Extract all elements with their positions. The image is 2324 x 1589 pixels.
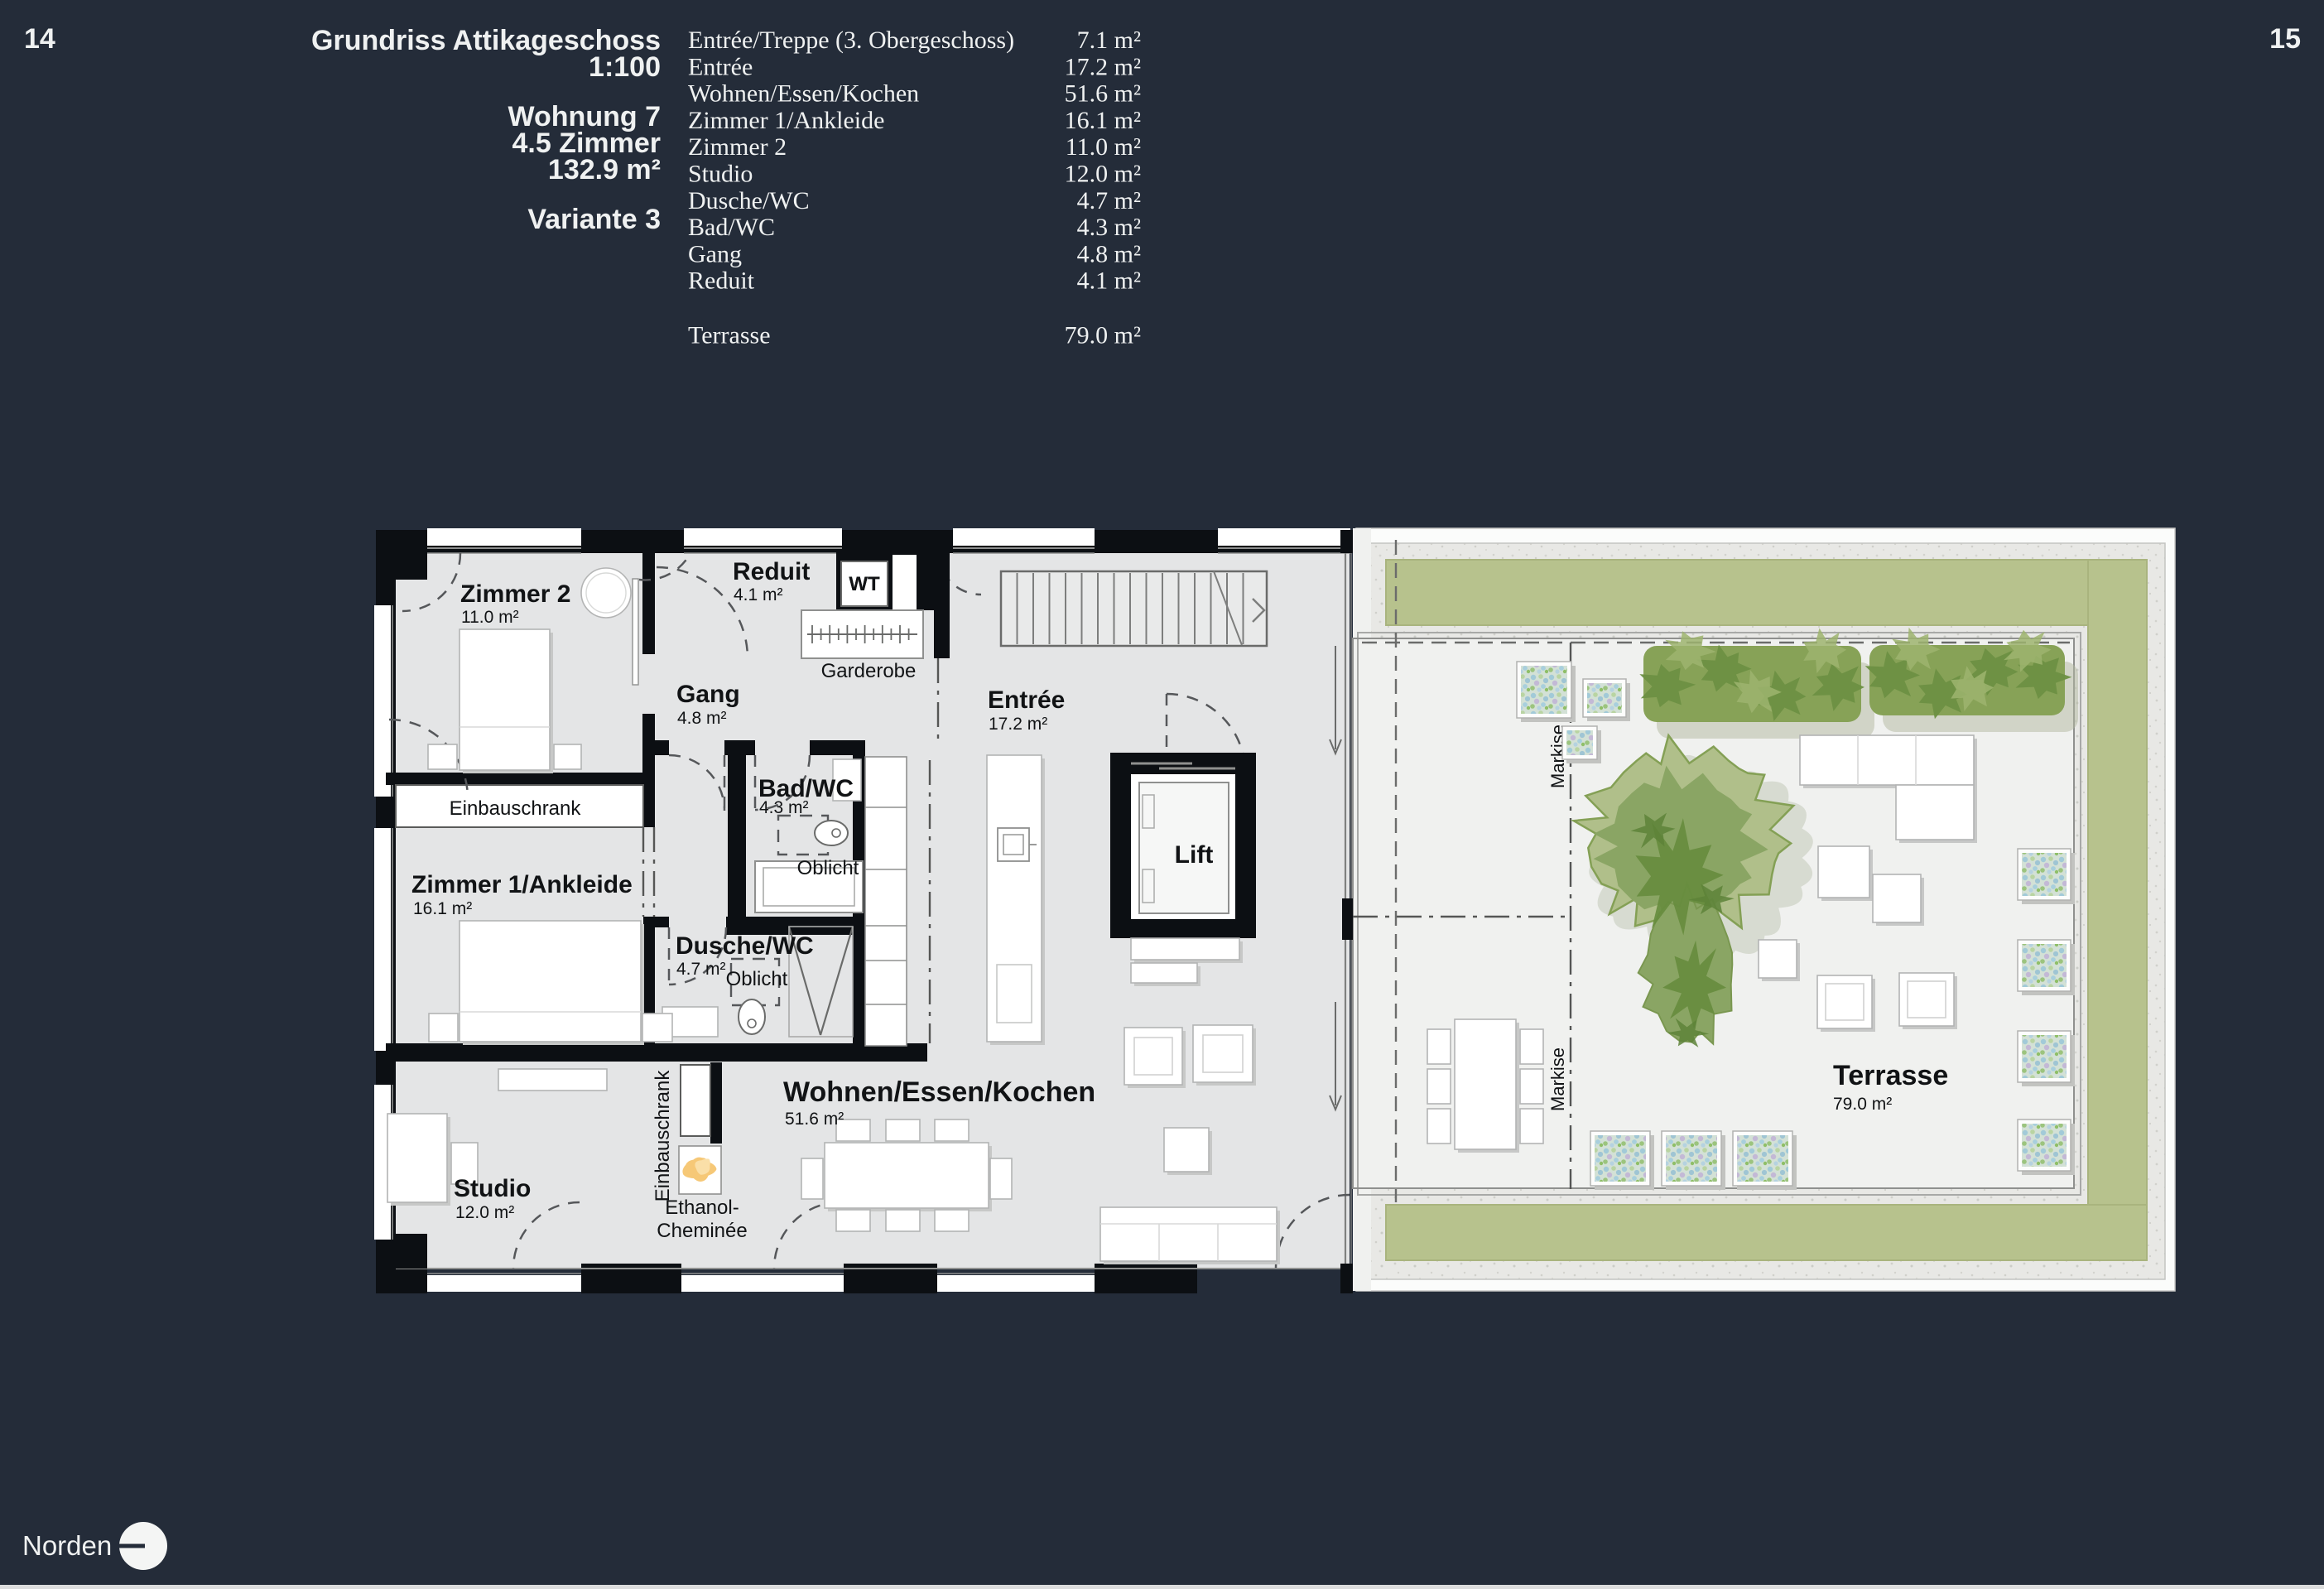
svg-text:17.2 m²: 17.2 m²	[989, 715, 1047, 734]
svg-text:Oblicht: Oblicht	[726, 968, 788, 990]
svg-text:Einbauschrank: Einbauschrank	[652, 1070, 674, 1202]
svg-text:Entrée: Entrée	[688, 53, 753, 80]
svg-text:14: 14	[24, 23, 55, 55]
svg-text:79.0 m²: 79.0 m²	[1833, 1095, 1892, 1114]
svg-text:Einbauschrank: Einbauschrank	[450, 797, 582, 820]
svg-text:4.7 m²: 4.7 m²	[1077, 187, 1141, 214]
svg-text:Reduit: Reduit	[688, 267, 755, 295]
svg-text:4.3 m²: 4.3 m²	[759, 798, 809, 817]
svg-text:Zimmer 2: Zimmer 2	[688, 133, 787, 161]
svg-text:Ethanol-: Ethanol-	[665, 1197, 739, 1219]
svg-text:4.8 m²: 4.8 m²	[1077, 240, 1141, 267]
svg-text:79.0 m²: 79.0 m²	[1065, 322, 1141, 349]
svg-text:4.7 m²: 4.7 m²	[676, 960, 726, 979]
svg-text:Oblicht: Oblicht	[797, 857, 859, 879]
svg-text:Terrasse: Terrasse	[688, 322, 771, 349]
svg-text:Cheminée: Cheminée	[657, 1220, 747, 1242]
svg-text:Norden: Norden	[22, 1530, 112, 1561]
svg-text:Studio: Studio	[688, 161, 753, 188]
svg-text:16.1 m²: 16.1 m²	[413, 899, 472, 918]
svg-text:Dusche/WC: Dusche/WC	[688, 187, 810, 214]
svg-text:17.2 m²: 17.2 m²	[1065, 53, 1141, 80]
svg-text:Entrée: Entrée	[988, 686, 1065, 714]
svg-text:Zimmer 2: Zimmer 2	[460, 580, 570, 608]
svg-text:4.1 m²: 4.1 m²	[1077, 267, 1141, 295]
svg-text:11.0 m²: 11.0 m²	[1066, 133, 1141, 161]
svg-text:4.8 m²: 4.8 m²	[677, 709, 727, 728]
svg-text:7.1 m²: 7.1 m²	[1077, 26, 1141, 54]
svg-text:Reduit: Reduit	[733, 558, 810, 585]
svg-text:Gang: Gang	[676, 681, 740, 708]
svg-text:Wohnen/Essen/Kochen: Wohnen/Essen/Kochen	[783, 1076, 1095, 1108]
svg-text:51.6 m²: 51.6 m²	[1065, 80, 1141, 108]
svg-text:Entrée/Treppe (3. Obergeschoss: Entrée/Treppe (3. Obergeschoss)	[688, 26, 1014, 54]
svg-text:Bad/WC: Bad/WC	[688, 214, 775, 241]
svg-text:Garderobe: Garderobe	[821, 660, 917, 682]
svg-text:Markise: Markise	[1547, 1047, 1568, 1111]
svg-text:51.6 m²: 51.6 m²	[785, 1110, 844, 1129]
svg-text:WT: WT	[849, 573, 880, 595]
svg-text:132.9 m²: 132.9 m²	[548, 154, 661, 185]
svg-text:Zimmer 1/Ankleide: Zimmer 1/Ankleide	[688, 107, 884, 134]
svg-text:12.0 m²: 12.0 m²	[455, 1203, 514, 1222]
svg-text:Wohnen/Essen/Kochen: Wohnen/Essen/Kochen	[688, 80, 919, 108]
svg-text:4.3 m²: 4.3 m²	[1077, 214, 1141, 241]
svg-text:Zimmer 1/Ankleide: Zimmer 1/Ankleide	[411, 871, 633, 898]
svg-text:1:100: 1:100	[589, 51, 661, 83]
svg-text:Variante 3: Variante 3	[527, 204, 661, 235]
svg-text:15: 15	[2269, 23, 2301, 55]
svg-text:11.0 m²: 11.0 m²	[461, 608, 519, 627]
svg-text:Gang: Gang	[688, 240, 742, 267]
svg-text:Lift: Lift	[1175, 841, 1214, 869]
svg-text:4.1 m²: 4.1 m²	[734, 585, 783, 604]
svg-text:Terrasse: Terrasse	[1833, 1060, 1948, 1091]
svg-text:Studio: Studio	[454, 1175, 531, 1202]
svg-text:Dusche/WC: Dusche/WC	[676, 932, 814, 960]
svg-text:12.0 m²: 12.0 m²	[1065, 161, 1141, 188]
svg-text:16.1 m²: 16.1 m²	[1065, 107, 1141, 134]
